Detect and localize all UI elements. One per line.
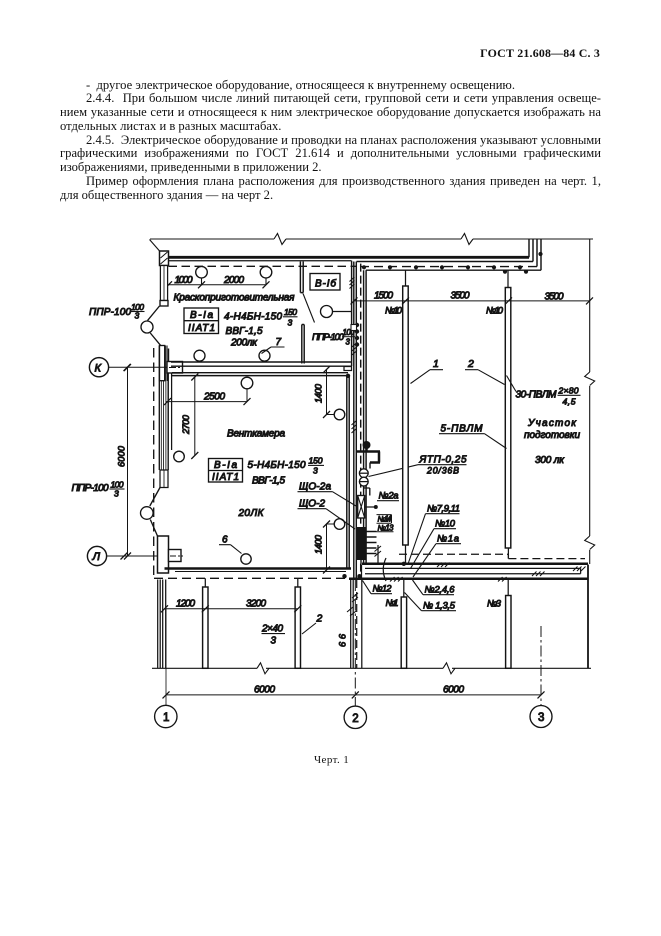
svg-text:Участок: Участок xyxy=(527,418,577,429)
svg-text:1400: 1400 xyxy=(314,534,324,554)
svg-text:№12: №12 xyxy=(373,583,393,594)
svg-text:20/36В: 20/36В xyxy=(426,466,459,476)
svg-text:1: 1 xyxy=(433,358,439,370)
svg-text:3: 3 xyxy=(538,712,544,724)
svg-text:№7,9,11: №7,9,11 xyxy=(427,503,460,514)
svg-text:Л: Л xyxy=(92,551,101,563)
svg-text:3500: 3500 xyxy=(451,291,470,302)
svg-text:ППР-100: ППР-100 xyxy=(89,307,131,318)
svg-text:20ЛК: 20ЛК xyxy=(238,508,265,519)
svg-text:ЩО-2: ЩО-2 xyxy=(299,499,325,510)
svg-text:3: 3 xyxy=(288,318,293,328)
svg-text:2700: 2700 xyxy=(181,414,191,435)
svg-text:№2,4,6: №2,4,6 xyxy=(425,584,456,595)
svg-text:3: 3 xyxy=(114,489,119,499)
svg-text:6000: 6000 xyxy=(254,684,275,695)
svg-text:ВВГ-1,5: ВВГ-1,5 xyxy=(252,476,285,487)
svg-text:Венткамера: Венткамера xyxy=(227,429,285,440)
svg-text:66: 66 xyxy=(338,633,348,647)
svg-text:№10: №10 xyxy=(385,305,403,316)
svg-text:2: 2 xyxy=(316,613,323,625)
svg-text:2×80: 2×80 xyxy=(558,386,579,396)
svg-text:№3: №3 xyxy=(487,598,502,609)
svg-text:5-Н4БН-150: 5-Н4БН-150 xyxy=(248,460,306,471)
svg-text:ЩО-2а: ЩО-2а xyxy=(299,482,331,493)
svg-text:4,5: 4,5 xyxy=(563,396,576,406)
svg-text:150: 150 xyxy=(284,307,297,317)
svg-text:№10: №10 xyxy=(486,305,504,316)
svg-text:6: 6 xyxy=(222,535,228,546)
svg-text:К: К xyxy=(95,363,102,375)
svg-text:7: 7 xyxy=(276,337,282,348)
svg-text:3: 3 xyxy=(135,311,140,321)
svg-text:5-ПВЛМ: 5-ПВЛМ xyxy=(441,424,484,435)
svg-text:1400: 1400 xyxy=(314,383,324,403)
svg-text:В-Iб: В-Iб xyxy=(315,277,336,289)
svg-text:2500: 2500 xyxy=(203,391,225,402)
svg-text:№1а: №1а xyxy=(437,533,459,544)
svg-text:6000: 6000 xyxy=(116,445,126,467)
svg-text:2: 2 xyxy=(467,358,474,370)
svg-text:200лк: 200лк xyxy=(230,338,258,349)
svg-text:IIАТ1: IIАТ1 xyxy=(212,472,239,483)
svg-text:подготовки: подготовки xyxy=(524,430,580,441)
svg-text:4-Н4БН-150: 4-Н4БН-150 xyxy=(224,312,282,323)
svg-text:ППР-100: ППР-100 xyxy=(312,331,345,342)
svg-text:№1: №1 xyxy=(386,597,399,608)
svg-text:1200: 1200 xyxy=(176,598,195,609)
svg-text:№13: №13 xyxy=(378,523,395,532)
svg-text:3200: 3200 xyxy=(246,598,266,609)
svg-text:№10: №10 xyxy=(435,518,456,529)
svg-text:ВВГ-1,5: ВВГ-1,5 xyxy=(226,326,263,337)
svg-text:3: 3 xyxy=(346,338,351,347)
svg-text:№2а: №2а xyxy=(379,490,399,501)
svg-text:1000: 1000 xyxy=(175,275,193,286)
svg-text:3: 3 xyxy=(271,636,277,647)
svg-text:IIАТ1: IIАТ1 xyxy=(188,323,215,334)
svg-text:300 лк: 300 лк xyxy=(535,455,565,466)
svg-text:№ 1,3,5: № 1,3,5 xyxy=(423,600,456,611)
svg-text:2000: 2000 xyxy=(223,275,244,286)
svg-text:6000: 6000 xyxy=(443,684,464,695)
svg-text:2: 2 xyxy=(352,713,358,725)
svg-text:ППР-100: ППР-100 xyxy=(72,483,109,494)
svg-text:2×40: 2×40 xyxy=(261,624,283,635)
svg-text:3: 3 xyxy=(313,466,318,476)
svg-text:Краскоприготовительная: Краскоприготовительная xyxy=(174,292,296,303)
svg-text:1500: 1500 xyxy=(374,291,393,302)
svg-text:1: 1 xyxy=(163,712,169,724)
svg-text:150: 150 xyxy=(309,456,323,466)
svg-text:3500: 3500 xyxy=(545,292,564,303)
svg-text:ЯТП-0,25: ЯТП-0,25 xyxy=(419,455,467,466)
svg-text:30-ПВЛМ: 30-ПВЛМ xyxy=(516,390,558,401)
